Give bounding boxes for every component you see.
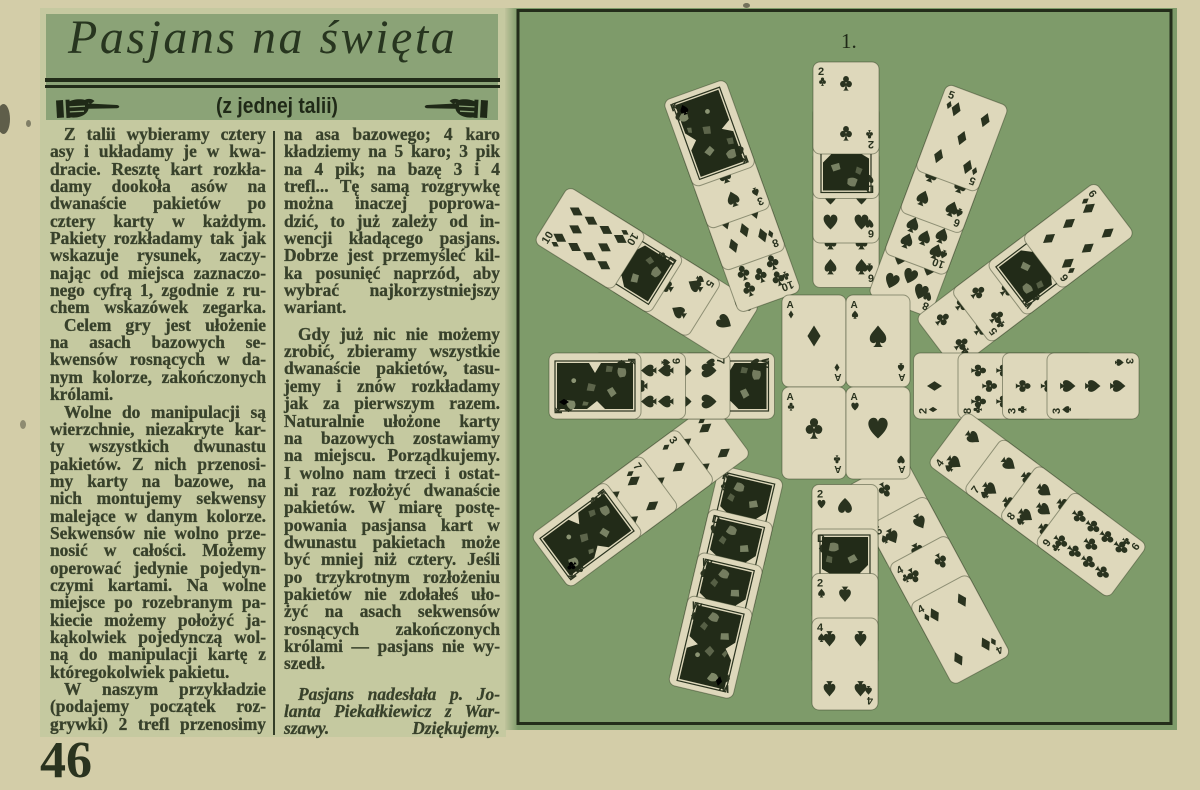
svg-text:2: 2 [818, 66, 824, 78]
svg-text:9: 9 [670, 358, 682, 364]
svg-text:A: A [787, 392, 794, 403]
svg-text:6: 6 [868, 227, 874, 239]
svg-text:A: A [834, 371, 841, 382]
svg-text:3: 3 [1051, 408, 1063, 414]
svg-text:A: A [851, 392, 858, 403]
svg-text:3: 3 [1123, 358, 1135, 364]
svg-text:8: 8 [962, 408, 974, 414]
svg-text:A: A [834, 463, 841, 474]
svg-text:A: A [787, 300, 794, 311]
svg-text:3: 3 [1007, 408, 1019, 414]
svg-text:A: A [898, 463, 905, 474]
svg-text:1.: 1. [841, 29, 857, 53]
svg-text:A: A [851, 300, 858, 311]
svg-text:2: 2 [817, 578, 823, 590]
svg-text:2: 2 [868, 138, 874, 150]
svg-text:2: 2 [817, 489, 823, 501]
svg-text:2: 2 [918, 408, 930, 414]
svg-text:A: A [898, 371, 905, 382]
svg-text:4: 4 [866, 694, 873, 706]
svg-text:4: 4 [817, 622, 824, 634]
